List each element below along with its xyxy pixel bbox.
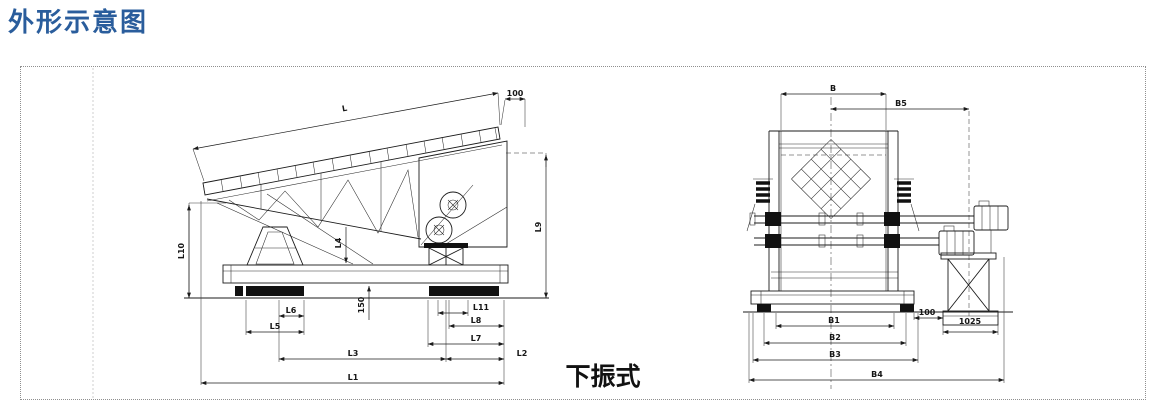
dim-label-L1: L1 bbox=[348, 373, 359, 382]
dim-label-L8: L8 bbox=[471, 316, 482, 325]
truss-cap bbox=[424, 243, 468, 248]
shafts-and-motors bbox=[750, 201, 1008, 255]
dim-label-B2: B2 bbox=[829, 333, 841, 342]
diagram-frame: L 100 L9 L10 L4 150 L6 L5 L11 L8 L7 L3 bbox=[20, 66, 1146, 400]
drawing-canvas: L 100 L9 L10 L4 150 L6 L5 L11 L8 L7 L3 bbox=[21, 67, 1145, 399]
exciter-box bbox=[419, 141, 507, 265]
dim-label-L6: L6 bbox=[286, 306, 297, 315]
spring-pad bbox=[429, 286, 499, 296]
dim-label-L2: L2 bbox=[517, 349, 528, 358]
front-view: B B5 B1 B2 B3 B4 100 1025 bbox=[743, 84, 1013, 389]
left-support bbox=[247, 227, 303, 265]
dim-label-L10: L10 bbox=[177, 242, 186, 259]
screen-box bbox=[769, 131, 898, 291]
front-view-dimensions: B B5 B1 B2 B3 B4 100 1025 bbox=[749, 84, 1004, 383]
dim-label-L9: L9 bbox=[534, 221, 543, 232]
body-truss bbox=[207, 162, 421, 264]
dim-label-100-top: 100 bbox=[507, 89, 524, 98]
dim-label-B: B bbox=[830, 84, 836, 93]
dim-label-100-gap: 100 bbox=[919, 308, 936, 317]
dim-label-150: 150 bbox=[357, 296, 366, 313]
base-frame bbox=[184, 265, 549, 298]
spring-pad bbox=[757, 304, 771, 312]
dim-label-L4: L4 bbox=[334, 237, 343, 248]
front-base bbox=[743, 291, 1013, 312]
screen-deck bbox=[203, 127, 502, 201]
dim-label-B5: B5 bbox=[895, 99, 907, 108]
dim-label-1025: 1025 bbox=[959, 317, 982, 326]
dim-label-L: L bbox=[341, 104, 348, 114]
motor-upper bbox=[974, 206, 1008, 230]
side-view: L 100 L9 L10 L4 150 L6 L5 L11 L8 L7 L3 bbox=[177, 89, 549, 385]
dim-label-B4: B4 bbox=[871, 370, 883, 379]
dim-label-L11: L11 bbox=[473, 303, 490, 312]
dim-label-L7: L7 bbox=[471, 334, 482, 343]
page-title: 外形示意图 bbox=[8, 2, 148, 39]
dim-label-L3: L3 bbox=[348, 349, 359, 358]
spring-pad bbox=[235, 286, 243, 296]
dim-label-L5: L5 bbox=[270, 322, 281, 331]
motor-stand bbox=[941, 253, 998, 325]
spring-pad bbox=[246, 286, 304, 296]
side-view-dimensions: L 100 L9 L10 L4 150 L6 L5 L11 L8 L7 L3 bbox=[177, 89, 546, 385]
caption: 下振式 bbox=[565, 362, 640, 391]
dim-label-B3: B3 bbox=[829, 350, 841, 359]
spring-pad bbox=[900, 304, 914, 312]
dim-label-B1: B1 bbox=[828, 316, 840, 325]
